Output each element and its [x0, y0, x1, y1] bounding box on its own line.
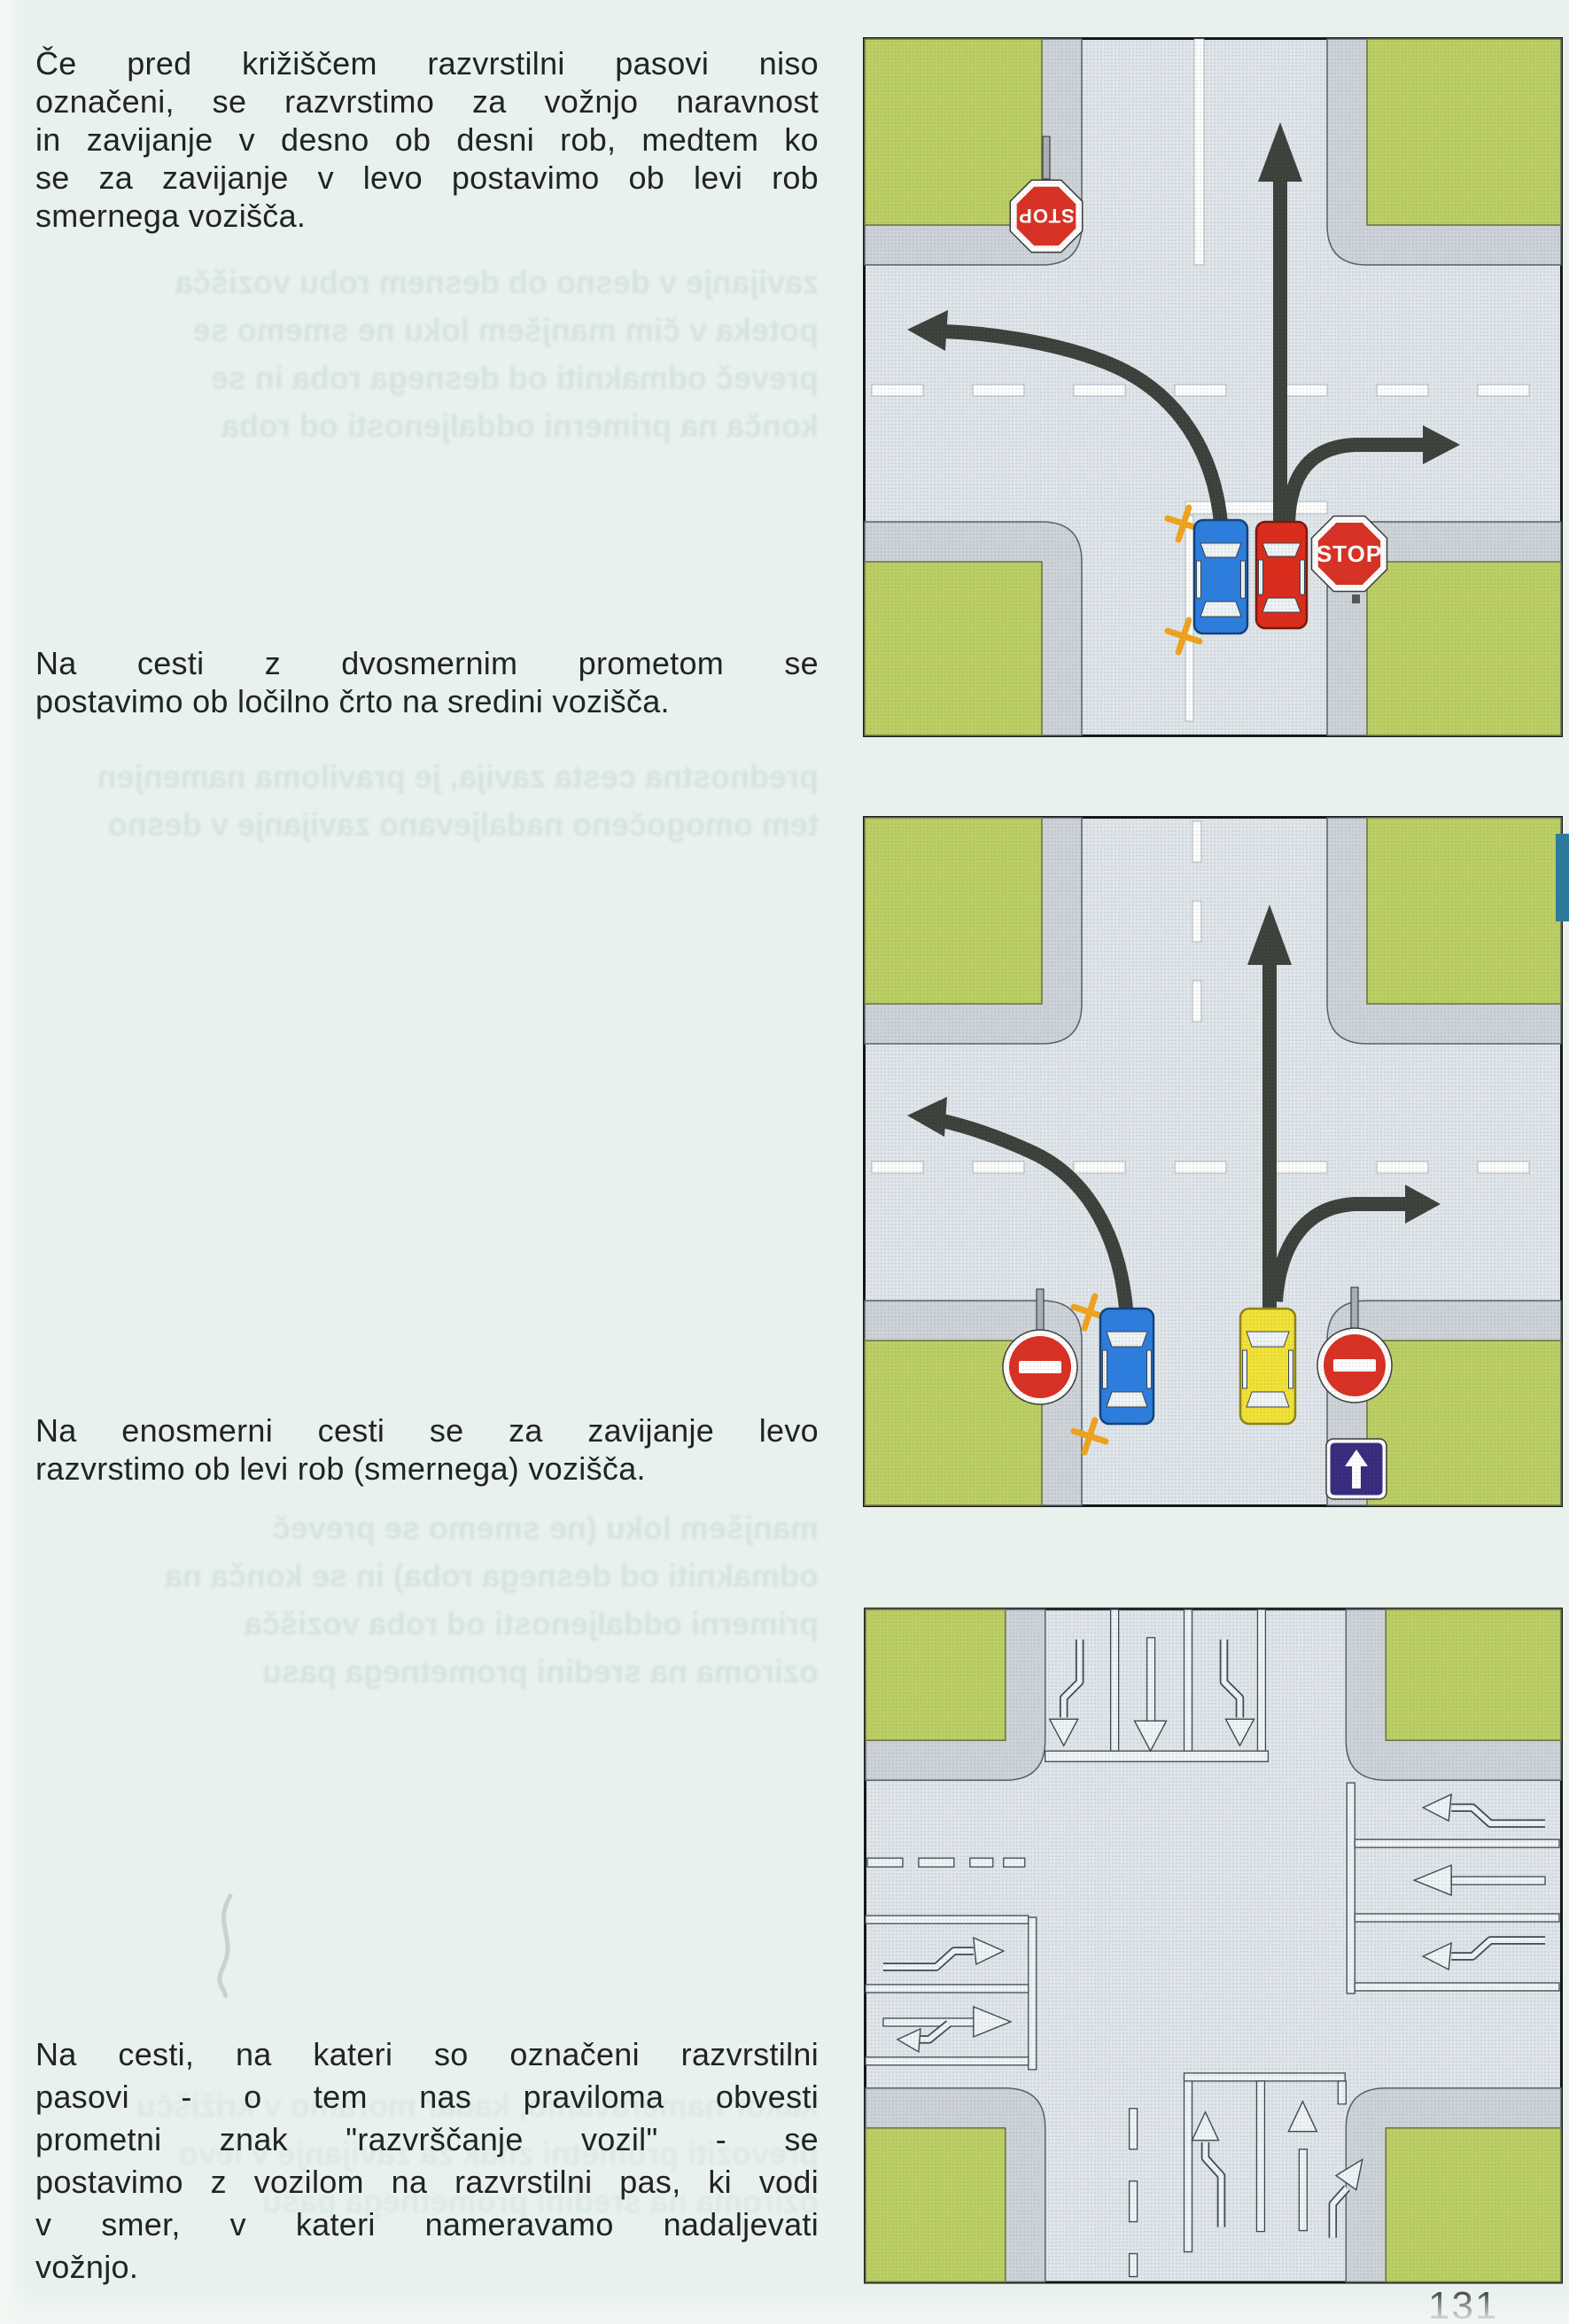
one-way-sign-icon — [1326, 1439, 1386, 1499]
bleed-text-line: preveč odmakniti od desnega roba in se — [35, 354, 819, 402]
grass-block — [1367, 818, 1561, 1004]
text-line: Na cesti z dvosmernim prometom se — [35, 644, 819, 682]
bleed-text-line: poteka v čim manjšem loku ne smemo se — [35, 307, 819, 354]
grass-block — [1386, 2128, 1561, 2282]
bleed-through-text: manjšem loku (ne smemo se preveč odmakni… — [35, 1504, 819, 1696]
intersection-graphic — [863, 816, 1563, 1507]
text-line: Na enosmerni cesti se za zavijanje levo — [35, 1411, 819, 1450]
diagram-two-way-unmarked: STOP STOP — [863, 37, 1563, 737]
grass-block — [865, 818, 1042, 1004]
text-line: Če pred križiščem razvrstilni pasovi nis… — [35, 44, 819, 82]
paragraph-marked-lanes: Na cesti, na kateri so označeni razvrsti… — [35, 2033, 819, 2289]
text-line: prometni znak "razvrščanje vozil" - se — [35, 2118, 819, 2161]
car-blue — [1100, 1309, 1153, 1424]
stop-line — [1045, 1751, 1269, 1761]
grass-block — [1367, 562, 1561, 735]
text-line: postavimo ob ločilno črto na sredini voz… — [35, 682, 819, 720]
intersection-graphic: STOP STOP — [863, 37, 1563, 737]
sign-pole — [1043, 136, 1050, 179]
bleed-text-line: odmakniti od desnega roba) in se konča n… — [35, 1552, 819, 1600]
diagram-one-way-street — [863, 816, 1563, 1507]
stop-sign-icon: STOP — [1312, 517, 1387, 592]
sign-pole — [1351, 1287, 1358, 1328]
grass-block — [866, 1609, 1006, 1740]
car-blue — [1194, 520, 1247, 633]
page-number: 131 — [1428, 2284, 1498, 2324]
bleed-through-text: prednostna cesta zavija, je praviloma na… — [35, 753, 819, 849]
car-yellow — [1240, 1309, 1295, 1424]
text-line: pasovi - o tem nas praviloma obvesti — [35, 2076, 819, 2118]
bleed-text-line: prednostna cesta zavija, je praviloma na… — [35, 753, 819, 801]
text-line: v smer, v kateri nameravamo nadaljevati — [35, 2204, 819, 2246]
no-entry-sign-icon — [1003, 1330, 1077, 1404]
grass-block — [865, 562, 1042, 735]
grass-block — [1367, 1341, 1561, 1505]
stop-sign-label: STOP — [1018, 205, 1075, 227]
text-line: postavimo z vozilom na razvrstilni pas, … — [35, 2161, 819, 2204]
book-page: zavijanje v desno ob desnem robu vozišča… — [0, 0, 1569, 2324]
text-line: razvrstimo ob levi rob (smernega) vozišč… — [35, 1450, 819, 1488]
pencil-scribble — [199, 1887, 261, 2002]
bleed-text-line: primerni oddaljenosti od roba vozišča — [35, 1600, 819, 1648]
lane-edge-line — [1194, 39, 1204, 265]
text-line: označeni, se razvrstimo za vožnjo naravn… — [35, 82, 819, 120]
stop-line — [1185, 501, 1327, 514]
grass-block — [1386, 1609, 1561, 1740]
bleed-text-line: zavijanje v desno ob desnem robu vozišča — [35, 259, 819, 307]
paragraph-unmarked-lanes: Če pred križiščem razvrstilni pasovi nis… — [35, 44, 819, 235]
bleed-through-text: zavijanje v desno ob desnem robu vozišča… — [35, 259, 819, 450]
sign-pole — [1352, 595, 1360, 603]
bleed-text-line: tem omogočeno nadaljevano zavijanje v de… — [35, 801, 819, 849]
grass-block — [1367, 39, 1561, 225]
north-dashed-line — [1192, 821, 1201, 1022]
text-line: vožnjo. — [35, 2246, 819, 2289]
paragraph-one-way-street: Na enosmerni cesti se za zavijanje levo … — [35, 1411, 819, 1488]
grass-block — [866, 2128, 1006, 2282]
bleed-text-line: konča na primerni oddaljenosti od roba — [35, 402, 819, 450]
page-edge-tab — [1556, 834, 1569, 921]
intersection-graphic — [864, 1607, 1563, 2284]
sign-pole — [1037, 1289, 1044, 1330]
text-line: smernega vozišča. — [35, 197, 819, 235]
text-line: se za zavijanje v levo postavimo ob levi… — [35, 159, 819, 197]
bleed-text-line: manjšem loku (ne smemo se preveč — [35, 1504, 819, 1552]
stop-sign-icon: STOP — [1010, 180, 1082, 252]
bleed-text-line: oziroma na sredini prometnega pasu — [35, 1648, 819, 1696]
stop-sign-label: STOP — [1317, 540, 1382, 567]
diagram-marked-lanes — [864, 1607, 1563, 2284]
text-line: in zavijanje v desno ob desni rob, medte… — [35, 120, 819, 159]
text-line: Na cesti, na kateri so označeni razvrsti… — [35, 2033, 819, 2076]
car-red — [1256, 522, 1307, 628]
no-entry-sign-icon — [1317, 1328, 1392, 1403]
paragraph-two-way-traffic: Na cesti z dvosmernim prometom se postav… — [35, 644, 819, 720]
